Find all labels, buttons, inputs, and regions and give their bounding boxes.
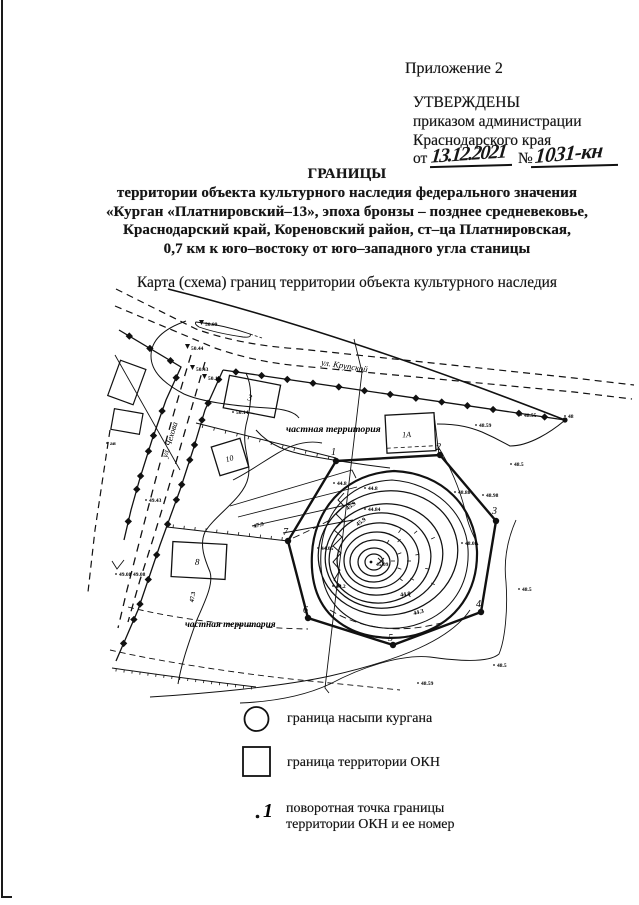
svg-text:48.5: 48.5 <box>497 663 507 669</box>
svg-text:48.59: 48.59 <box>421 681 434 687</box>
svg-text:44.84: 44.84 <box>368 507 381 513</box>
svg-text:ул. Чехова: ул. Чехова <box>159 421 180 460</box>
svg-text:1: 1 <box>331 447 336 458</box>
svg-text:50.43: 50.43 <box>196 367 209 373</box>
svg-text:1А: 1А <box>402 430 411 439</box>
svg-text:6: 6 <box>303 605 308 616</box>
svg-text:частная территория: частная территория <box>286 424 381 435</box>
svg-text:48.55: 48.55 <box>524 413 537 419</box>
svg-text:2: 2 <box>436 442 441 453</box>
svg-text:3: 3 <box>246 392 254 403</box>
svg-text:3: 3 <box>491 506 497 517</box>
svg-text:ая: ая <box>110 441 116 447</box>
svg-text:44.8: 44.8 <box>368 486 378 492</box>
svg-text:частная территория: частная территория <box>185 620 276 630</box>
svg-text:44.05: 44.05 <box>321 546 334 552</box>
svg-text:45.09: 45.09 <box>376 562 389 568</box>
svg-text:48.88: 48.88 <box>458 490 471 496</box>
svg-text:ул. Крупской: ул. Крупской <box>320 357 369 374</box>
svg-text:48.5: 48.5 <box>514 462 524 468</box>
svg-text:4: 4 <box>476 599 481 610</box>
svg-text:50.14: 50.14 <box>236 410 249 416</box>
svg-text:8: 8 <box>195 557 201 567</box>
svg-text:48.5: 48.5 <box>522 587 532 593</box>
svg-text:10: 10 <box>224 453 234 464</box>
svg-text:49.02: 49.02 <box>119 572 132 578</box>
svg-text:47.3: 47.3 <box>189 591 197 602</box>
svg-text:48: 48 <box>568 414 574 420</box>
svg-text:44.3: 44.3 <box>413 609 425 617</box>
svg-text:1: 1 <box>263 800 273 822</box>
svg-text:48.98: 48.98 <box>486 493 499 499</box>
svg-text:44.2: 44.2 <box>336 584 346 590</box>
svg-text:49.43: 49.43 <box>149 498 162 504</box>
svg-text:44.9: 44.9 <box>400 591 411 598</box>
svg-text:49.08: 49.08 <box>133 572 146 578</box>
svg-text:44.8: 44.8 <box>337 481 347 487</box>
svg-text:48.08: 48.08 <box>465 541 478 547</box>
svg-text:50.09: 50.09 <box>205 322 218 328</box>
svg-text:48.59: 48.59 <box>479 423 492 429</box>
svg-text:50.44: 50.44 <box>191 346 204 352</box>
svg-text:50.16: 50.16 <box>208 376 221 382</box>
